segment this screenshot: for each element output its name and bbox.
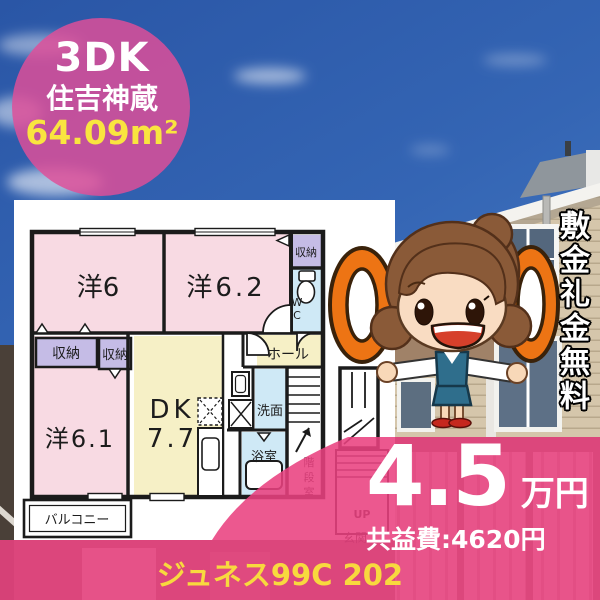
- layout-type: 3DK: [16, 36, 188, 81]
- location-name: 住吉神蔵: [16, 83, 188, 114]
- rent-unit: 万円: [521, 466, 589, 515]
- listing-ad: UP 玄関 洋6 洋6.2 収納 W C 収納 収納 ホール DK: [0, 0, 600, 600]
- floor-area: 64.09m²: [16, 115, 188, 152]
- property-badge: 3DK 住吉神蔵 64.09m²: [16, 36, 188, 152]
- price-block: 4.5 万円 共益費:4620円: [366, 434, 594, 556]
- common-fee: 共益費:4620円: [366, 520, 594, 556]
- rent-amount: 4.5: [366, 434, 509, 518]
- building-name: ジュネス99C 202: [0, 552, 560, 594]
- no-deposit-vertical-text: 敷金礼金無料: [552, 210, 590, 434]
